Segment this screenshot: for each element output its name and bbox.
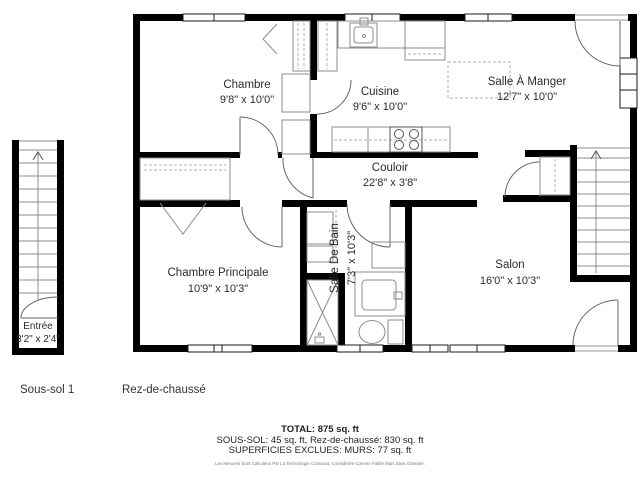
closet-rod-symbol: [263, 24, 277, 54]
floor-label-sous-sol: Sous-sol 1: [20, 384, 74, 396]
room-label-chambre: Chambre: [223, 79, 270, 91]
room-dims-chambre: 9'8" x 10'0": [220, 94, 274, 106]
toilet: [359, 321, 385, 344]
room-label-salon: Salon: [495, 259, 524, 271]
summary-total: TOTAL: 875 sq. ft: [0, 425, 640, 436]
room-label-chambre-principale: Chambre Principale: [168, 267, 269, 279]
room-label-entree: Entrée: [23, 321, 53, 332]
kitchen-fixtures: [318, 18, 510, 152]
closet-rod-symbol: [160, 203, 206, 234]
summary-disclaimer: Les Mesures Sont Calculées Par La Techno…: [0, 461, 640, 466]
room-label-cuisine: Cuisine: [361, 86, 399, 98]
room-dims-entree: 3'2" x 2'4": [16, 334, 60, 345]
room-label-couloir: Couloir: [372, 162, 409, 174]
room-dims-couloir: 22'8" x 3'8": [363, 177, 417, 189]
room-dims-salle-de-bain: 7'3" x 10'3": [346, 231, 358, 285]
floorplan-page: Chambre 9'8" x 10'0" Cuisine 9'6" x 10'0…: [0, 0, 640, 480]
area-summary: TOTAL: 875 sq. ft SOUS-SOL: 45 sq. ft, R…: [0, 425, 640, 466]
floor-label-rez-de-chausse: Rez-de-chaussé: [122, 384, 206, 396]
bathroom-cabinet: [372, 242, 405, 268]
room-label-salle-de-bain: Salle De Bain: [329, 223, 341, 293]
room-labels: Chambre 9'8" x 10'0" Cuisine 9'6" x 10'0…: [16, 75, 566, 345]
room-dims-cuisine: 9'6" x 10'0": [353, 101, 407, 113]
floorplan-drawing: Chambre 9'8" x 10'0" Cuisine 9'6" x 10'0…: [0, 0, 640, 480]
main-staircase: [577, 148, 630, 273]
room-dims-salle-a-manger: 12'7" x 10'0": [497, 91, 557, 103]
summary-exclusions: SUPERFICIES EXCLUES: MURS: 77 sq. ft: [0, 446, 640, 457]
room-label-salle-a-manger: Salle À Manger: [488, 75, 567, 88]
entrance-staircase: [19, 141, 57, 300]
wall-layer: [12, 14, 637, 355]
vanity-sink: [362, 280, 396, 310]
room-dims-chambre-principale: 10'9" x 10'3": [188, 283, 248, 295]
door-layer: [21, 21, 620, 345]
room-dims-salon: 16'0" x 10'3": [480, 275, 540, 287]
